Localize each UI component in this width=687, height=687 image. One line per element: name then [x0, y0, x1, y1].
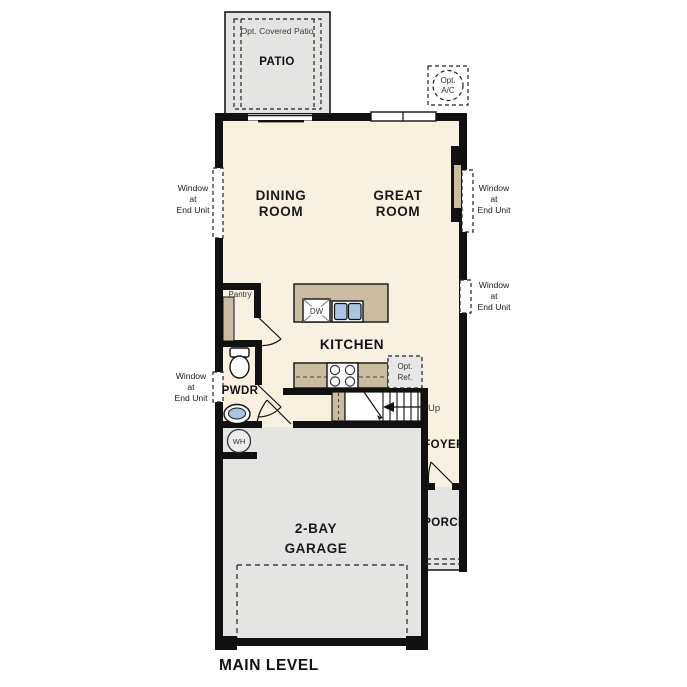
stove-cooktop [327, 363, 358, 388]
window-opening-dining [213, 168, 223, 238]
window-opening-kitchen [460, 280, 471, 313]
window-note-kitchen: Window at End Unit [478, 280, 512, 312]
window-note-dining: Window at End Unit [177, 183, 211, 215]
floor-plan-page: Opt. Covered Patio PATIO Opt. A/C [0, 0, 687, 687]
patio-label: PATIO [259, 56, 294, 68]
svg-text:End Unit: End Unit [177, 205, 211, 215]
svg-text:at: at [189, 194, 197, 204]
svg-text:at: at [490, 194, 498, 204]
pantry-label: Pantry [228, 290, 251, 299]
opt-ref-line2: Ref. [398, 373, 413, 382]
window-opening-great [462, 170, 473, 232]
kitchen-label: KITCHEN [320, 337, 384, 352]
svg-text:Window: Window [479, 280, 510, 290]
svg-text:End Unit: End Unit [175, 393, 209, 403]
opt-ac-unit: Opt. A/C [428, 66, 468, 105]
great-room-window [371, 112, 436, 121]
kitchen-island: DW [294, 284, 388, 322]
kitchen-sink [332, 301, 363, 322]
garage-label-line2: GARAGE [285, 541, 348, 556]
opt-ac-label-line1: Opt. [440, 76, 455, 85]
svg-text:Window: Window [176, 371, 207, 381]
opt-covered-patio-label: Opt. Covered Patio [240, 26, 313, 36]
svg-text:Window: Window [178, 183, 209, 193]
svg-text:End Unit: End Unit [478, 302, 512, 312]
pwdr-label: PWDR [222, 385, 259, 397]
wh-label: WH [233, 437, 246, 446]
floor-plan-svg: Opt. Covered Patio PATIO Opt. A/C [0, 0, 687, 687]
sink-fixture [224, 405, 250, 424]
patio-area: Opt. Covered Patio PATIO [225, 12, 330, 116]
media-wall-inset [454, 165, 461, 208]
svg-text:at: at [187, 382, 195, 392]
window-note-pwdr: Window at End Unit [175, 371, 209, 403]
water-heater: WH [228, 430, 251, 453]
dining-room-label-line1: DINING [256, 188, 307, 203]
dining-room-label-line2: ROOM [259, 204, 303, 219]
svg-text:at: at [490, 291, 498, 301]
great-room-label-line2: ROOM [376, 204, 420, 219]
svg-text:Window: Window [479, 183, 510, 193]
dw-label: DW [310, 307, 324, 316]
foyer-floor [424, 425, 464, 487]
garage-label-line1: 2-BAY [295, 521, 337, 536]
porch-label: PORCH [423, 517, 467, 529]
svg-text:End Unit: End Unit [478, 205, 512, 215]
opt-refrigerator: Opt. Ref. [388, 356, 422, 388]
opt-ac-label-line2: A/C [441, 86, 455, 95]
great-room-label-line1: GREAT [373, 188, 422, 203]
page-title: MAIN LEVEL [219, 657, 319, 674]
kitchen-counter [294, 363, 388, 388]
up-label: Up [428, 403, 440, 414]
foyer-label: FOYER [423, 439, 465, 451]
toilet-fixture [230, 348, 249, 378]
opt-ref-line1: Opt. [397, 362, 412, 371]
window-note-great: Window at End Unit [478, 183, 512, 215]
dishwasher: DW [303, 299, 330, 322]
